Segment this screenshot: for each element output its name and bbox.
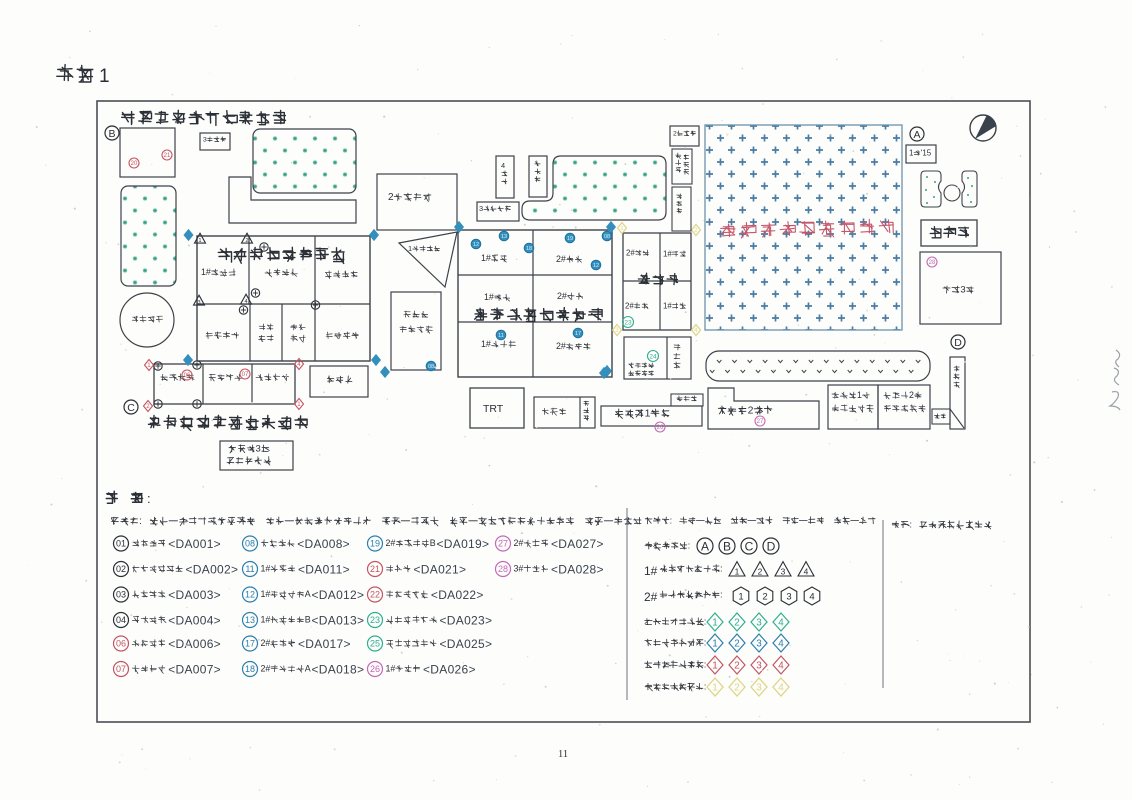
svg-text:26: 26 [370,664,380,674]
svg-text::: : [704,682,707,693]
svg-text:12: 12 [245,590,255,600]
svg-text:2: 2 [734,639,740,650]
svg-text:'15: '15 [921,148,932,157]
svg-text:<DA001>: <DA001> [168,537,221,551]
svg-text:3: 3 [756,639,762,650]
svg-text:11: 11 [245,564,254,574]
svg-text:4: 4 [804,567,809,577]
svg-text:21: 21 [370,564,380,574]
svg-text:1#: 1# [261,615,271,625]
svg-text:1: 1 [99,66,110,87]
svg-text:2: 2 [734,618,740,629]
svg-text:A: A [305,664,311,674]
svg-text:4: 4 [778,683,784,694]
svg-text:<DA007>: <DA007> [168,663,221,677]
svg-text:11: 11 [498,333,504,339]
svg-text:13: 13 [501,234,507,240]
svg-text:<DA017>: <DA017> [298,637,351,651]
svg-text:1: 1 [712,618,718,629]
svg-text::: : [704,617,707,628]
svg-text:19: 19 [370,539,380,549]
svg-text:<DA022>: <DA022> [431,588,484,602]
svg-text::: : [704,660,707,671]
svg-text:08: 08 [428,364,434,370]
svg-text:1: 1 [712,661,718,672]
svg-text:2: 2 [734,683,740,694]
svg-text:2: 2 [245,238,248,244]
svg-text:<DA012>: <DA012> [312,588,365,602]
svg-text:<DA025>: <DA025> [440,637,493,651]
svg-text:<DA018>: <DA018> [312,663,365,677]
svg-text::: : [147,491,151,506]
svg-text:1#: 1# [663,301,672,310]
svg-text::: : [720,590,723,601]
svg-text::: : [909,520,912,531]
svg-text:17: 17 [575,331,581,337]
svg-text:1: 1 [645,407,651,419]
svg-text:1: 1 [198,238,201,244]
svg-text:4: 4 [778,661,784,672]
svg-text:<DA003>: <DA003> [168,588,221,602]
svg-text:3: 3 [203,137,207,144]
svg-text:12: 12 [593,263,599,269]
svg-text:1#: 1# [481,339,491,349]
svg-text::: : [704,638,707,649]
svg-text:18: 18 [526,246,532,252]
svg-text:4: 4 [809,591,814,602]
svg-text:2#: 2# [556,254,566,264]
svg-text:1: 1 [712,639,718,650]
svg-text:25: 25 [370,639,380,649]
svg-text:08: 08 [245,539,255,549]
svg-text:D: D [767,539,776,553]
svg-text:<DA021>: <DA021> [414,563,467,577]
svg-text:06: 06 [184,373,191,379]
svg-text:2#: 2# [514,538,524,548]
svg-text:1: 1 [738,591,743,602]
svg-text:<DA026>: <DA026> [423,663,476,677]
svg-text:2#: 2# [557,291,567,301]
svg-text:1#: 1# [663,249,672,258]
svg-text::: : [688,541,691,552]
svg-text:27: 27 [757,419,764,425]
svg-text:B: B [108,128,115,140]
svg-text::: : [670,515,673,525]
svg-text:2: 2 [762,591,767,602]
svg-text:07: 07 [242,372,249,378]
svg-text:<DA023>: <DA023> [440,614,493,628]
svg-text:A: A [913,129,920,141]
svg-text:12: 12 [473,242,479,248]
svg-text:1#: 1# [386,664,396,674]
svg-text:3: 3 [786,591,791,602]
svg-text:2: 2 [734,661,740,672]
svg-text:3: 3 [756,683,762,694]
svg-text:20: 20 [131,161,138,167]
svg-text:TRT: TRT [483,403,504,415]
svg-text:C: C [745,539,754,553]
svg-text:08: 08 [604,234,610,240]
svg-text:1: 1 [857,390,862,400]
svg-text::: : [720,564,723,575]
svg-text:4: 4 [778,639,784,650]
svg-text:28: 28 [498,564,508,574]
svg-text:<DA013>: <DA013> [312,614,365,628]
svg-text:3: 3 [756,661,762,672]
svg-text:02: 02 [116,564,126,574]
svg-text:<DA008>: <DA008> [297,537,350,551]
svg-text:19: 19 [567,236,573,242]
svg-text:24: 24 [649,353,657,360]
svg-text:11: 11 [558,749,568,760]
svg-text:3: 3 [960,285,965,296]
svg-text:06: 06 [116,639,126,649]
svg-text:3: 3 [781,567,786,577]
svg-text:D: D [954,337,962,349]
svg-text::: : [139,516,142,527]
svg-text:2: 2 [673,131,677,138]
svg-text:<DA006>: <DA006> [168,637,221,651]
svg-text:1#: 1# [261,564,271,574]
svg-text:2: 2 [909,390,914,400]
svg-text:1: 1 [408,244,412,253]
svg-text:B: B [723,539,731,553]
svg-text:17: 17 [245,639,255,649]
svg-text:03: 03 [116,590,126,600]
svg-text:04: 04 [116,615,126,625]
svg-text:1#: 1# [644,564,658,578]
svg-text:2: 2 [748,404,754,416]
svg-text:22: 22 [370,590,380,600]
svg-text:<DA004>: <DA004> [168,614,221,628]
svg-text:1#: 1# [201,267,211,277]
svg-text:28: 28 [929,260,936,266]
svg-text:2#: 2# [261,664,271,674]
svg-text:01: 01 [116,539,126,549]
svg-text:1: 1 [909,148,913,157]
svg-text:2#: 2# [644,590,658,604]
svg-text:3: 3 [756,618,762,629]
svg-text:2#: 2# [261,638,271,648]
svg-text:A: A [305,589,311,599]
svg-text:B: B [305,615,311,625]
svg-text:B: B [430,538,436,548]
svg-text:3: 3 [197,300,200,306]
svg-text:13: 13 [245,615,255,625]
svg-text:2: 2 [758,567,763,577]
svg-text:23: 23 [370,615,380,625]
svg-text:<DA002>: <DA002> [186,563,239,577]
svg-text:3: 3 [479,204,483,213]
svg-text:C: C [127,402,135,414]
svg-text:2: 2 [388,192,394,203]
svg-text:07: 07 [116,664,126,674]
svg-text:1: 1 [735,567,740,577]
svg-text:18: 18 [245,664,255,674]
svg-text:3#: 3# [514,564,524,574]
svg-text:4: 4 [778,618,784,629]
svg-text:21: 21 [164,153,171,159]
svg-text:1: 1 [712,683,718,694]
svg-text:A: A [701,539,709,553]
svg-text:23: 23 [624,319,632,326]
svg-text:4: 4 [501,161,505,170]
svg-text:<DA011>: <DA011> [298,563,350,577]
svg-text:1#: 1# [261,589,271,599]
svg-text:<DA027>: <DA027> [551,537,604,551]
svg-text:3: 3 [256,444,261,455]
svg-text:2#: 2# [556,341,566,351]
svg-text:2#: 2# [626,248,635,257]
svg-text:26: 26 [657,425,664,431]
svg-text:<DA028>: <DA028> [551,563,604,577]
svg-text:<DA019>: <DA019> [437,537,490,551]
svg-text:2#: 2# [625,301,634,310]
svg-text:1#: 1# [481,253,491,263]
svg-text:1#: 1# [484,292,494,302]
